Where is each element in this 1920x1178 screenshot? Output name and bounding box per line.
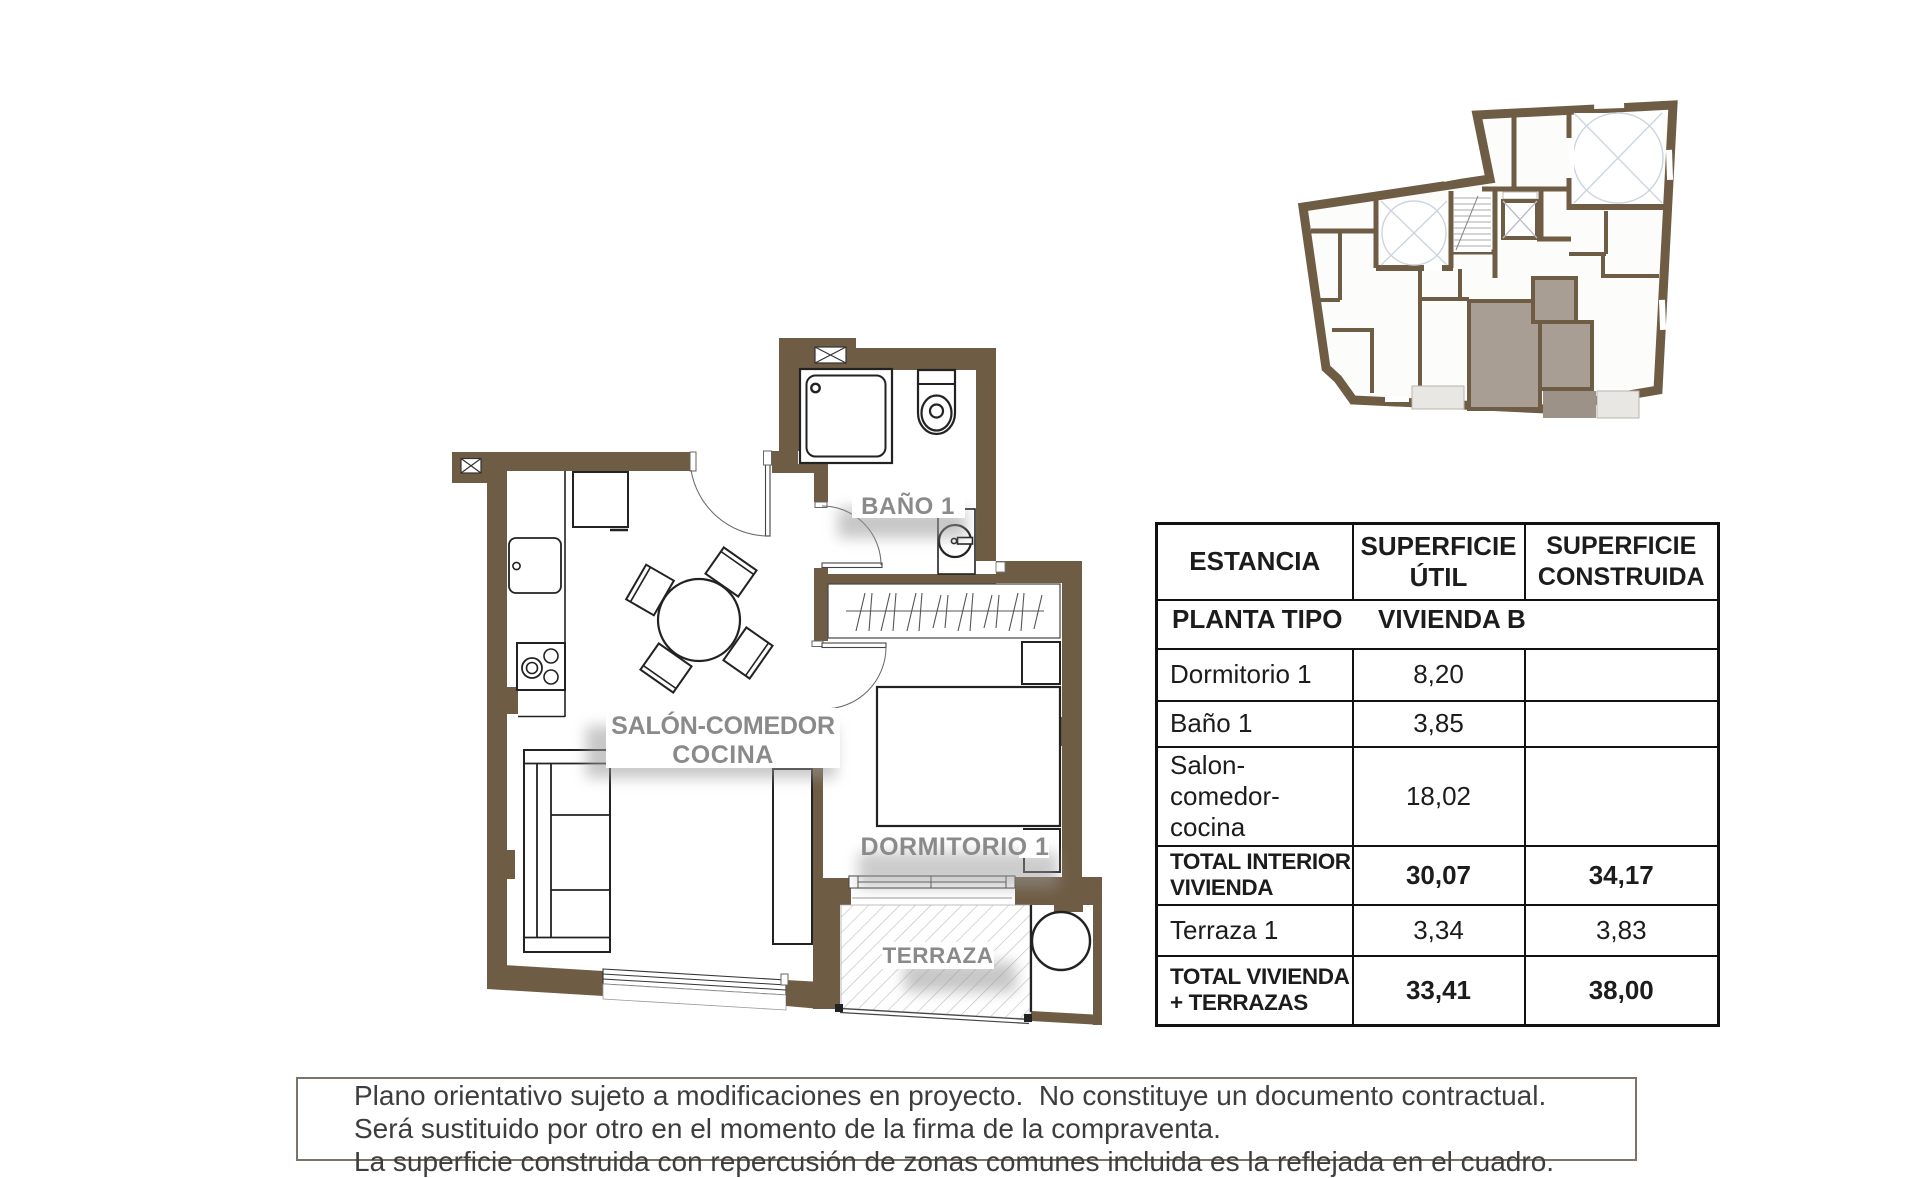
svg-text:BAÑO 1: BAÑO 1 [861,492,955,520]
svg-text:SALÓN-COMEDOR: SALÓN-COMEDOR [611,710,835,740]
svg-text:COCINA: COCINA [672,741,774,769]
svg-text:TERRAZA: TERRAZA [883,943,994,968]
svg-text:DORMITORIO 1: DORMITORIO 1 [861,833,1050,861]
